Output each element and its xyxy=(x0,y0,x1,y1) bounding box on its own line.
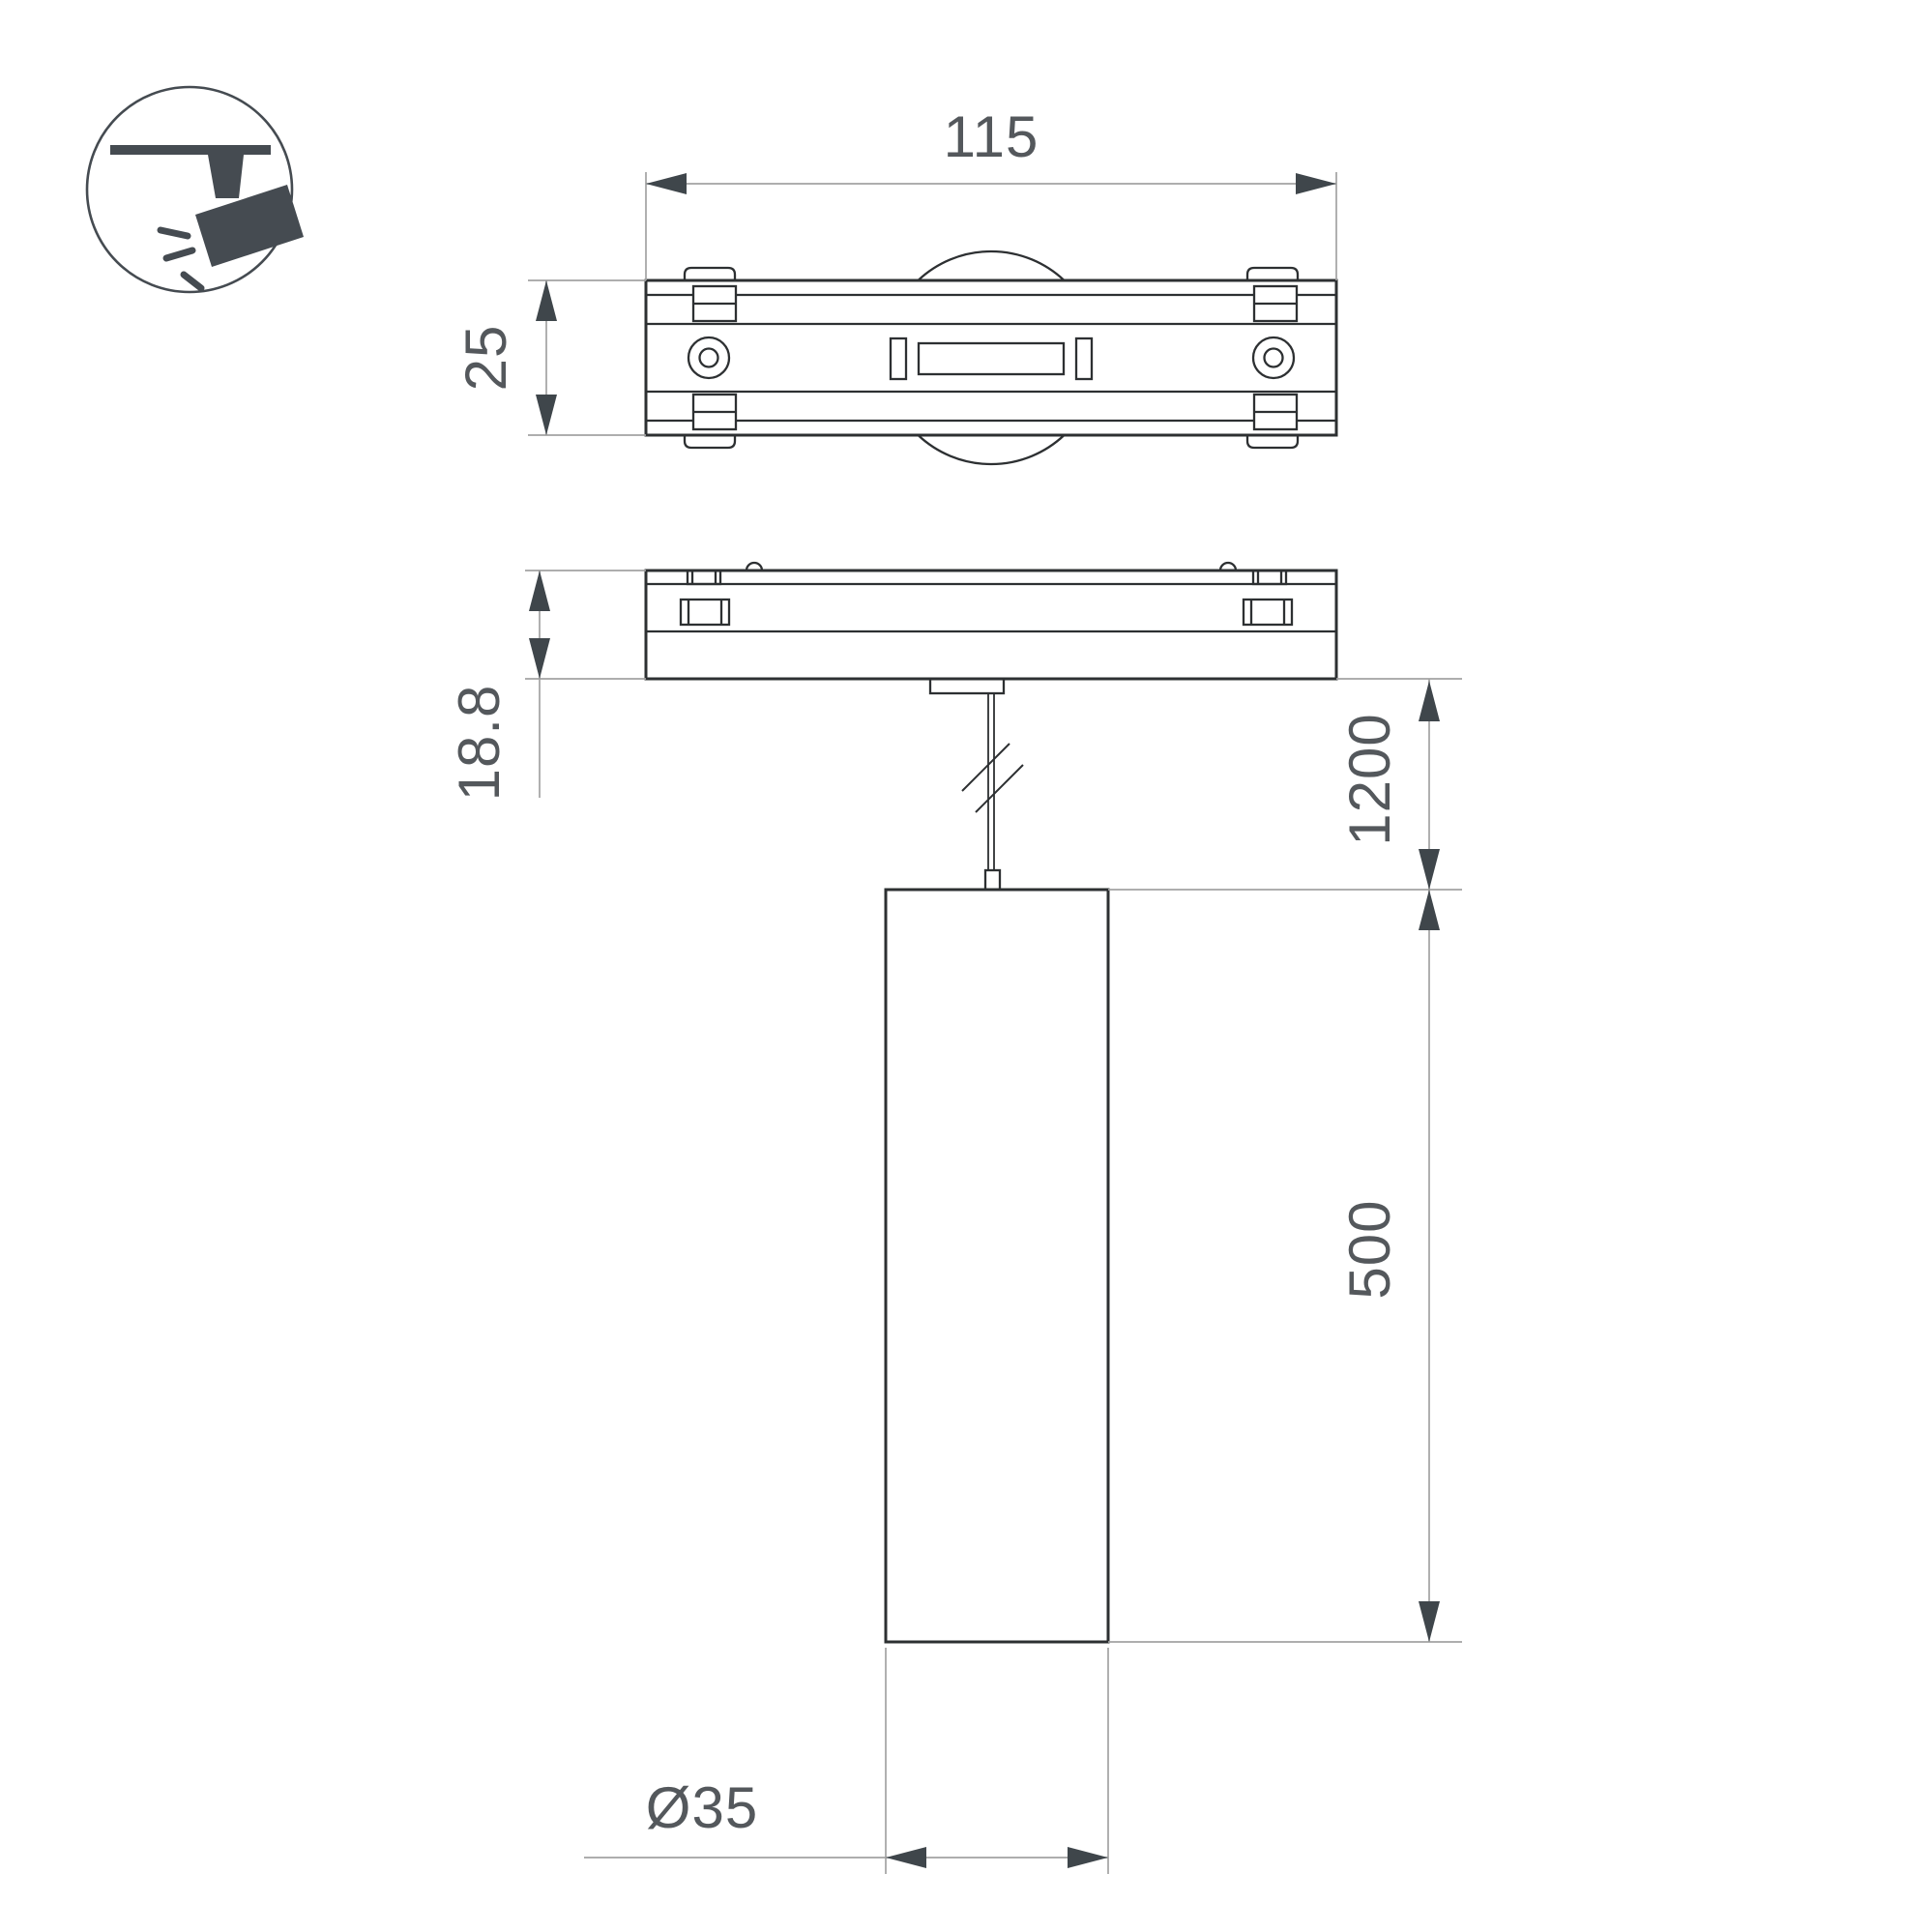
adapter-body-top-view xyxy=(646,280,1336,435)
magnet-arc-bottom xyxy=(919,435,1065,464)
dim-label-adapter-width: 25 xyxy=(454,325,518,392)
magnet-arc-top xyxy=(919,251,1065,280)
dim-label-adapter-length: 115 xyxy=(944,104,1039,169)
pendant-cylinder xyxy=(886,890,1108,1642)
dimension-lamp-height: 500 xyxy=(1108,890,1462,1642)
side-latch-right xyxy=(1253,571,1286,584)
dimension-suspension-length: 1200 xyxy=(1108,679,1462,890)
dim-label-lamp-height: 500 xyxy=(1337,1199,1402,1299)
side-latch-left xyxy=(688,571,720,584)
icon-circle xyxy=(87,87,292,292)
arrowhead-left xyxy=(646,173,687,194)
dimension-adapter-width: 25 xyxy=(454,280,646,435)
latch-window-left xyxy=(681,600,729,625)
suspension-plate xyxy=(930,679,1004,693)
dim-label-suspension-length: 1200 xyxy=(1337,713,1402,845)
dim-label-adapter-height: 18.8 xyxy=(447,685,512,802)
latch-squares xyxy=(693,286,1297,429)
latch-window-right xyxy=(1244,600,1292,625)
arrowhead-right xyxy=(1296,173,1336,194)
dim-label-lamp-diameter: Ø35 xyxy=(646,1775,758,1840)
dimension-adapter-length: 115 xyxy=(646,104,1336,280)
adapter-body-side-view xyxy=(646,571,1336,679)
icon-track-bar xyxy=(110,145,271,155)
cable-ferrule xyxy=(985,870,1000,890)
side-view xyxy=(646,563,1336,890)
track-light-icon xyxy=(87,87,304,292)
dimension-adapter-height: 18.8 xyxy=(447,571,646,801)
screw-right xyxy=(1253,337,1294,378)
technical-drawing: 115 25 xyxy=(0,0,1932,1932)
cable-break-symbol xyxy=(962,744,1023,812)
technical-drawing-page: 115 25 xyxy=(0,0,1932,1932)
top-view xyxy=(646,251,1336,464)
screw-left xyxy=(688,337,729,378)
power-connector xyxy=(891,338,1092,379)
dimension-lamp-diameter: Ø35 xyxy=(584,1648,1108,1874)
